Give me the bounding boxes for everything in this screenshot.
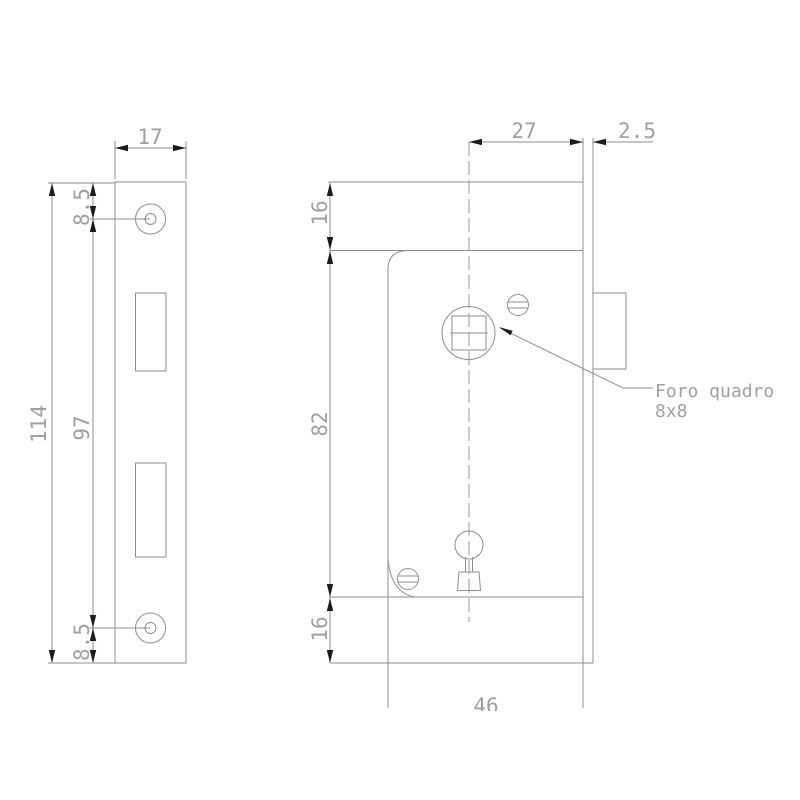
dim-case-depth: 46 — [420, 694, 560, 751]
arrowhead — [115, 145, 128, 151]
annotation-line1: Foro quadro — [655, 381, 774, 402]
dim-text-top-margin: 16 — [308, 200, 332, 225]
dim-hole-offsets: 8.5 97 8.5 — [70, 183, 150, 663]
dim-text-bottom-margin: 16 — [308, 616, 332, 641]
arrowhead — [593, 139, 606, 145]
dim-text-top-hole-offset: 8.5 — [70, 188, 94, 226]
arrowhead — [327, 598, 333, 611]
leader-arrowhead — [499, 327, 513, 335]
drawing-svg: 17 114 8.5 97 8.5 — [0, 0, 800, 800]
arrowhead — [49, 183, 55, 196]
deadbolt-cutout — [136, 463, 167, 557]
dim-faceplate-width: 17 — [115, 125, 186, 179]
case-top-left-fillet — [388, 251, 409, 270]
arrowhead — [570, 139, 583, 145]
dim-text-hole-spacing: 97 — [70, 415, 94, 440]
lock-technical-drawing: 17 114 8.5 97 8.5 — [0, 0, 800, 800]
annotation-line2: 8x8 — [655, 401, 688, 422]
arrowhead — [327, 237, 333, 250]
latch-cutout — [136, 293, 167, 371]
screw-top — [508, 295, 529, 316]
leader-line — [500, 328, 653, 388]
case-bottom-left-arc — [388, 559, 415, 597]
dim-text-faceplate-thickness: 2.5 — [618, 119, 656, 143]
latch-bolt — [593, 293, 626, 369]
arrowhead — [327, 183, 333, 196]
faceplate-outline — [115, 182, 186, 663]
arrowhead — [327, 251, 333, 264]
dim-backset-and-thickness: 27 2.5 — [469, 119, 656, 145]
arrowhead — [469, 139, 482, 145]
screw-bottom — [398, 569, 419, 590]
faceplate-front-view — [115, 182, 186, 663]
arrowhead — [327, 584, 333, 597]
dim-text-bottom-hole-offset: 8.5 — [70, 623, 94, 661]
arrowhead — [327, 650, 333, 663]
lock-case-side-view — [328, 138, 626, 708]
dim-text-backset: 27 — [511, 119, 536, 143]
drawing-crop-mask — [420, 711, 560, 751]
arrowhead — [173, 145, 186, 151]
arrowhead — [49, 650, 55, 663]
dim-text-case-height: 82 — [308, 411, 332, 436]
square-hole-annotation: Foro quadro 8x8 — [499, 327, 774, 422]
dim-side-vertical: 16 82 16 — [308, 183, 333, 663]
dim-text-width: 17 — [137, 125, 162, 149]
dim-text-total-height: 114 — [27, 405, 51, 443]
